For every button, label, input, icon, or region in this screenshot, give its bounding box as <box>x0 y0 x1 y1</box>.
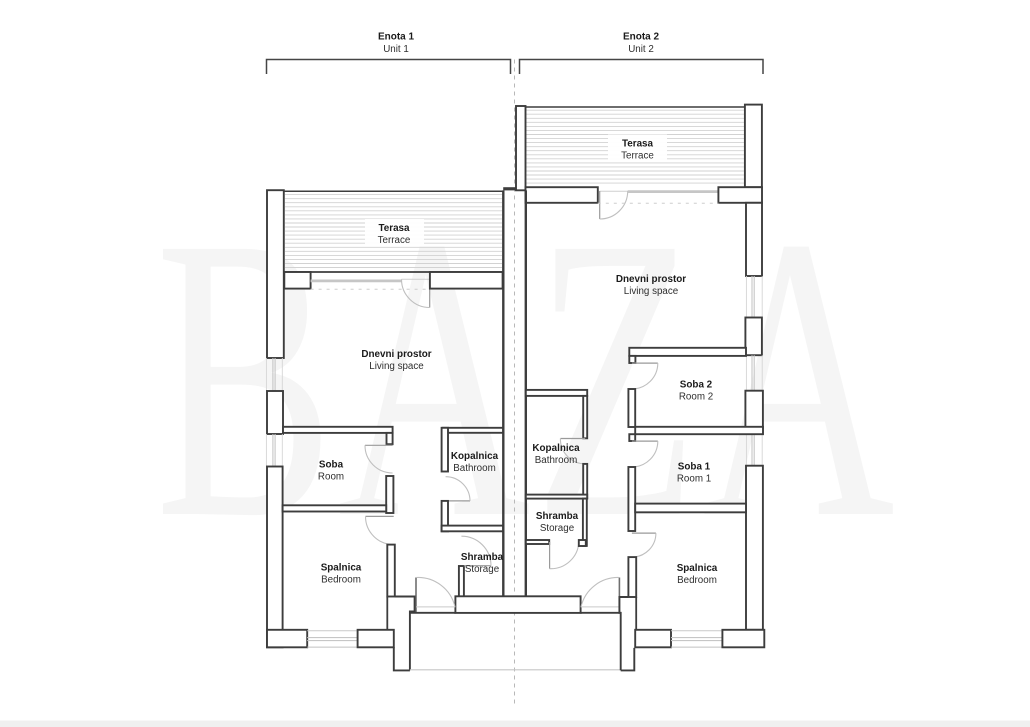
svg-text:Terrace: Terrace <box>378 235 411 246</box>
svg-text:Soba 2: Soba 2 <box>680 380 713 391</box>
svg-text:Enota 1: Enota 1 <box>378 32 415 43</box>
svg-text:Soba: Soba <box>319 460 344 471</box>
svg-text:Shramba: Shramba <box>536 511 579 522</box>
svg-text:Dnevni prostor: Dnevni prostor <box>361 349 431 360</box>
svg-text:Storage: Storage <box>540 523 575 534</box>
svg-text:Soba 1: Soba 1 <box>678 462 711 473</box>
svg-text:Spalnica: Spalnica <box>677 563 718 574</box>
svg-text:Room: Room <box>318 472 344 483</box>
svg-text:Living space: Living space <box>624 286 679 297</box>
svg-text:Bedroom: Bedroom <box>677 575 717 586</box>
svg-text:Living space: Living space <box>369 361 424 372</box>
svg-text:Storage: Storage <box>465 564 500 575</box>
svg-text:Dnevni prostor: Dnevni prostor <box>616 274 686 285</box>
svg-text:Terasa: Terasa <box>378 223 410 234</box>
svg-text:Room 2: Room 2 <box>679 392 713 403</box>
svg-text:Unit 1: Unit 1 <box>383 44 409 55</box>
svg-text:Kopalnica: Kopalnica <box>532 443 580 454</box>
svg-text:Spalnica: Spalnica <box>321 563 362 574</box>
svg-text:Terrace: Terrace <box>621 151 654 162</box>
svg-text:Unit 2: Unit 2 <box>628 44 654 55</box>
svg-text:Bathroom: Bathroom <box>535 455 577 466</box>
svg-text:Bedroom: Bedroom <box>321 575 361 586</box>
svg-text:Kopalnica: Kopalnica <box>451 451 499 462</box>
svg-text:Bathroom: Bathroom <box>453 463 495 474</box>
svg-text:Terasa: Terasa <box>622 139 654 150</box>
svg-text:Enota 2: Enota 2 <box>623 32 660 43</box>
svg-text:Room 1: Room 1 <box>677 474 711 485</box>
svg-text:Shramba: Shramba <box>461 552 504 563</box>
